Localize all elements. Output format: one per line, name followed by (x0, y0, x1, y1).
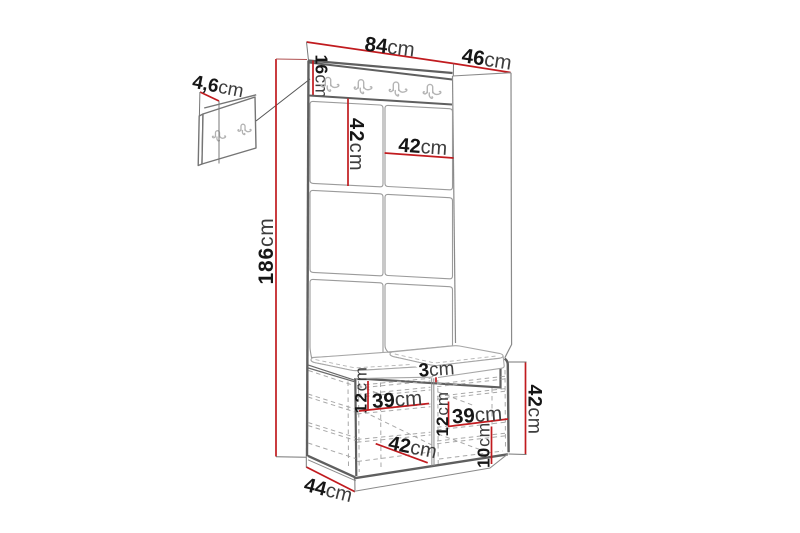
svg-text:3cm: 3cm (418, 358, 455, 381)
svg-text:10cm: 10cm (474, 422, 494, 468)
svg-text:186cm: 186cm (255, 217, 278, 284)
svg-text:12cm: 12cm (352, 366, 371, 414)
svg-text:42cm: 42cm (398, 135, 448, 160)
svg-text:42cm: 42cm (345, 118, 367, 172)
svg-text:42cm: 42cm (524, 385, 546, 435)
svg-text:16cm: 16cm (312, 55, 332, 99)
svg-text:12cm: 12cm (433, 391, 452, 437)
svg-text:39cm: 39cm (371, 387, 423, 413)
